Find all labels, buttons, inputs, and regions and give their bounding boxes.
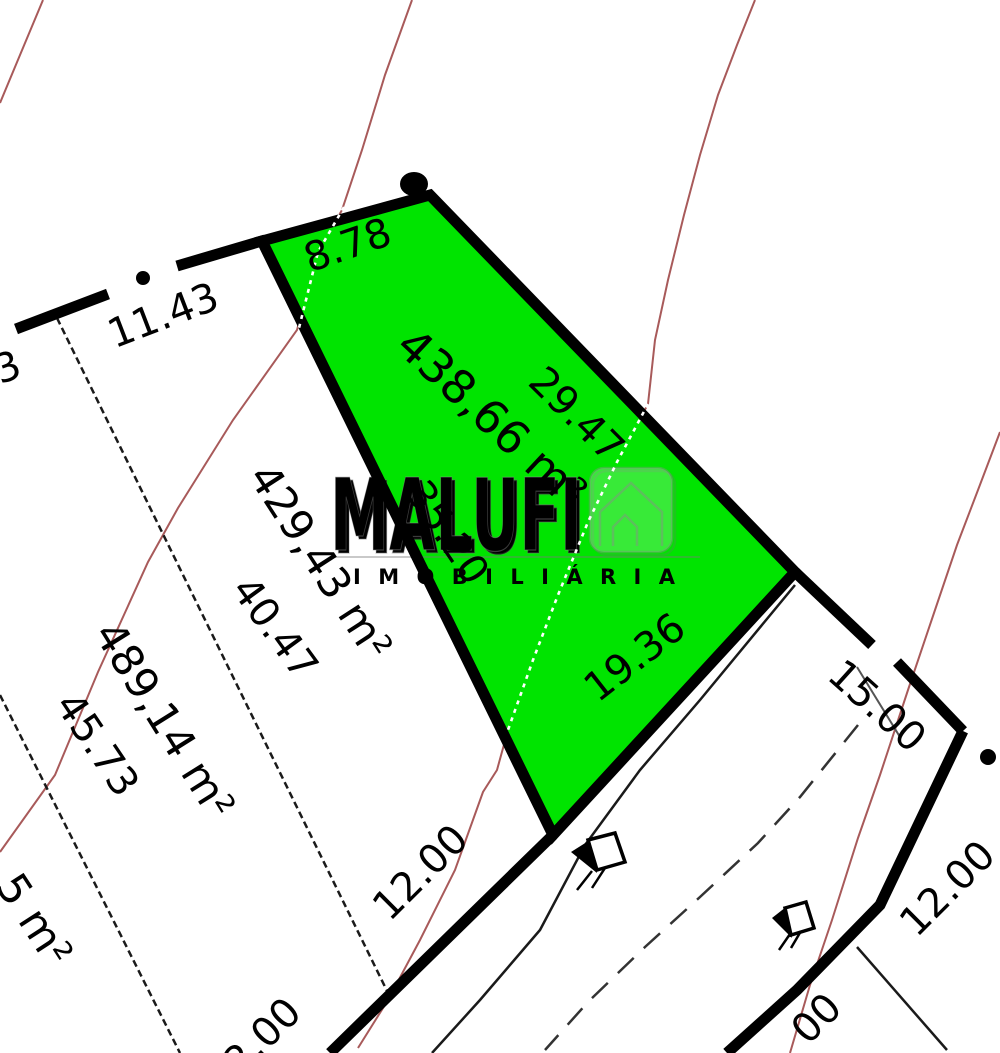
plot-map: MALUFI MALUFI IMOBILIÁRIA	[0, 0, 1000, 1053]
survey-dot-apex	[400, 172, 428, 196]
house-icon	[590, 468, 675, 555]
survey-drawing: MALUFI MALUFI IMOBILIÁRIA	[0, 0, 1000, 1053]
survey-dot-right	[980, 749, 996, 765]
survey-dot-upper	[136, 271, 150, 285]
